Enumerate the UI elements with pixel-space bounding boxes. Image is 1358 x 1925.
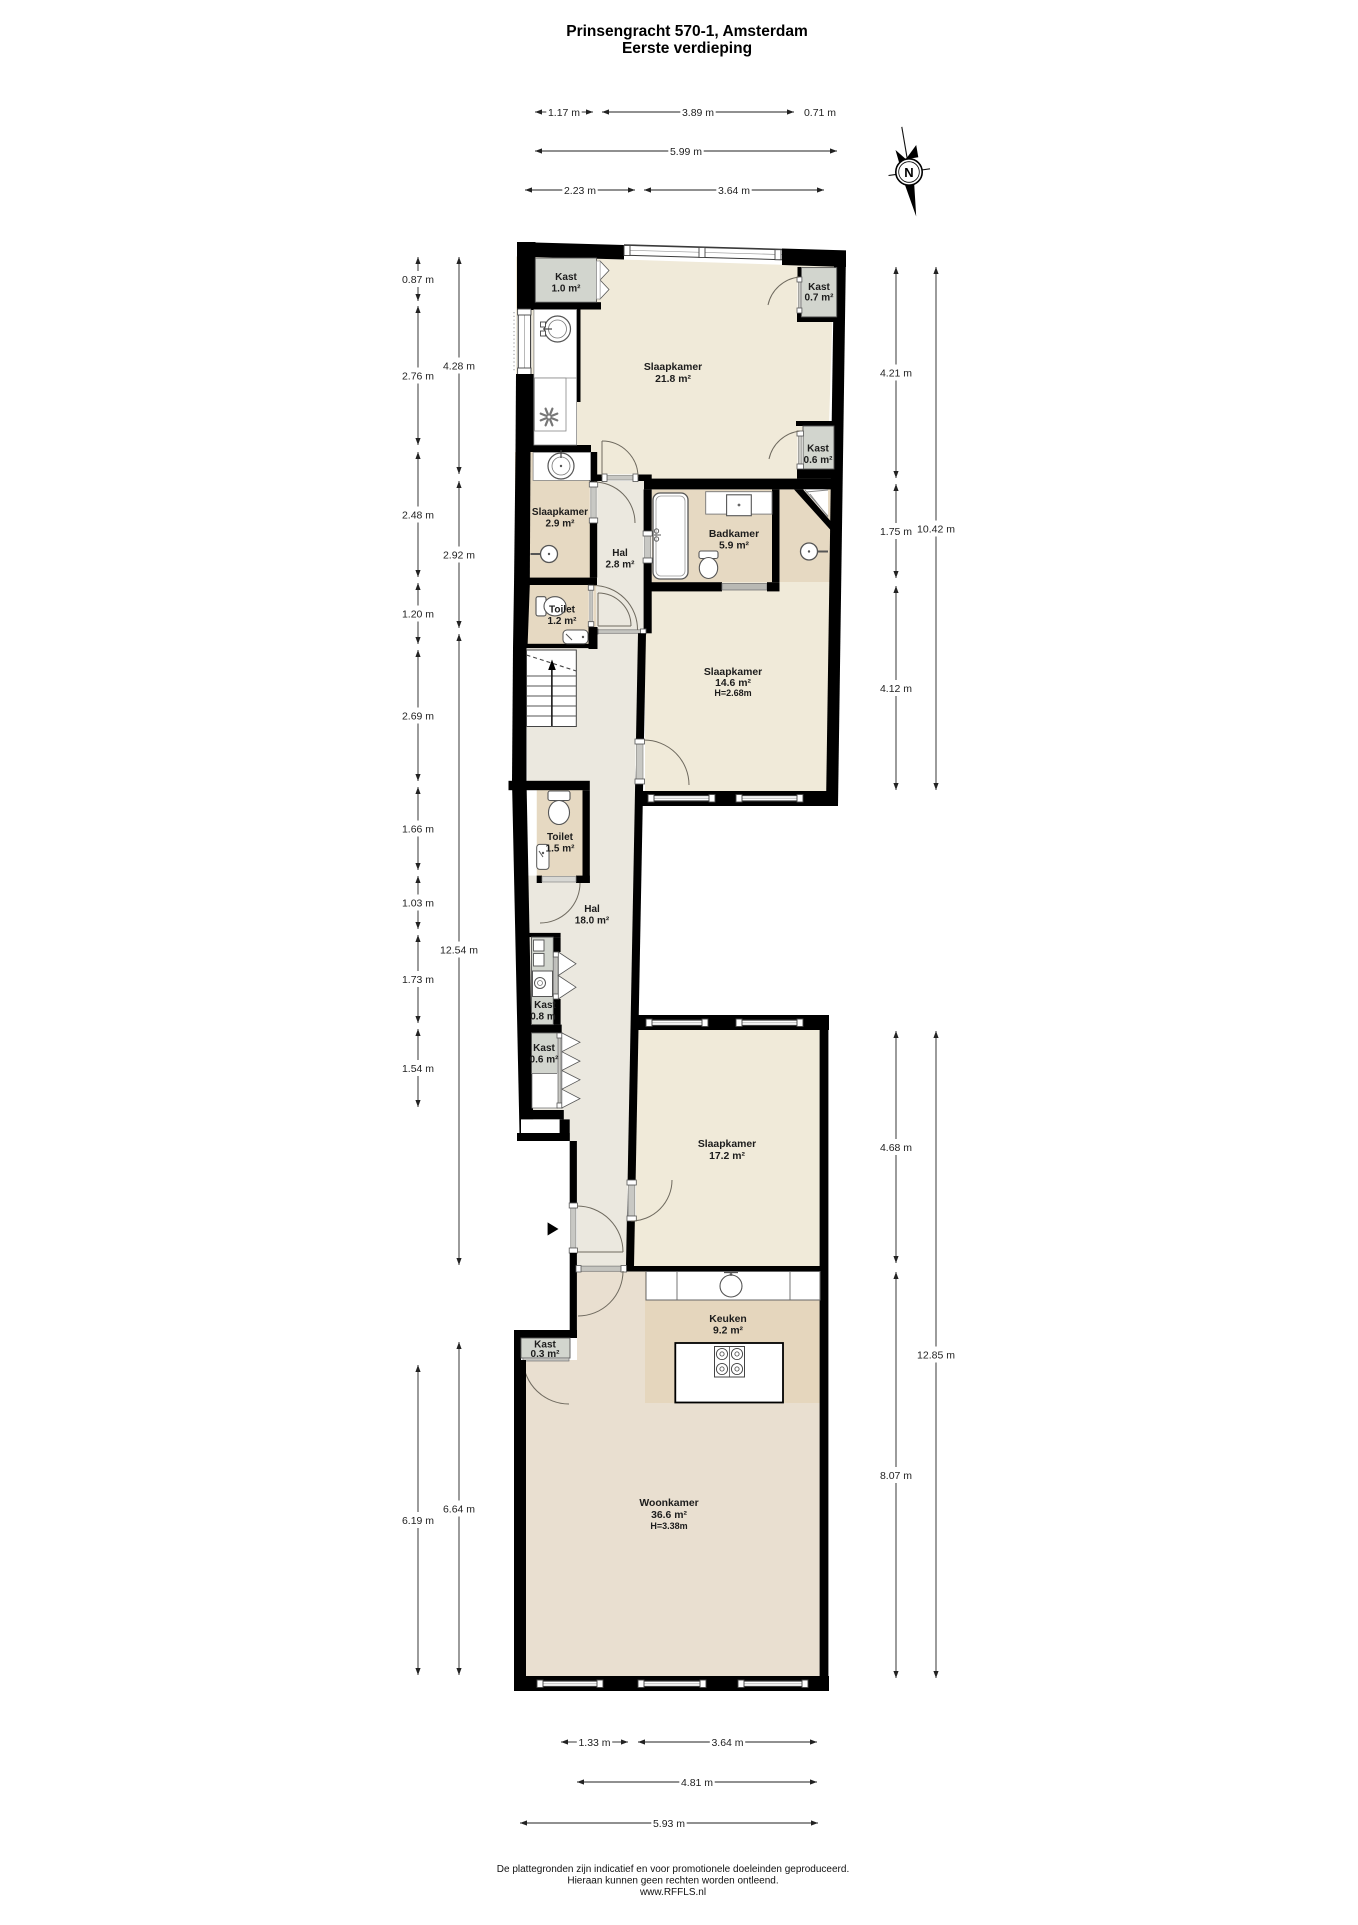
svg-text:Eerste verdieping: Eerste verdieping [622,40,752,57]
svg-text:0.7 m²: 0.7 m² [805,293,835,304]
svg-text:1.0 m²: 1.0 m² [552,284,582,295]
svg-text:Hal: Hal [612,548,628,559]
svg-text:1.20 m: 1.20 m [402,608,434,620]
svg-text:Toilet: Toilet [549,605,576,616]
svg-text:1.17 m: 1.17 m [548,107,580,119]
svg-text:0.3 m²: 0.3 m² [531,1349,561,1360]
svg-text:6.19 m: 6.19 m [402,1515,434,1527]
svg-text:4.68 m: 4.68 m [880,1142,912,1154]
svg-text:1.73 m: 1.73 m [402,974,434,986]
svg-text:2.92 m: 2.92 m [443,549,475,561]
svg-text:0.87 m: 0.87 m [402,274,434,286]
svg-text:8.07 m: 8.07 m [880,1470,912,1482]
svg-text:Kast: Kast [808,282,830,293]
svg-text:4.28 m: 4.28 m [443,360,475,372]
svg-text:Kast: Kast [555,272,577,283]
svg-text:0.71 m: 0.71 m [804,107,836,119]
svg-text:1.54 m: 1.54 m [402,1063,434,1075]
svg-text:18.0 m²: 18.0 m² [575,916,610,927]
svg-text:4.81 m: 4.81 m [681,1777,713,1789]
svg-text:www.RFFLS.nl: www.RFFLS.nl [639,1887,706,1898]
svg-text:1.66 m: 1.66 m [402,823,434,835]
svg-text:Kast: Kast [534,1000,556,1011]
svg-text:Keuken: Keuken [709,1314,747,1325]
svg-text:2.23 m: 2.23 m [564,185,596,197]
svg-text:2.9 m²: 2.9 m² [546,519,576,530]
svg-text:10.42 m: 10.42 m [917,523,955,535]
svg-text:Slaapkamer: Slaapkamer [532,507,588,518]
svg-text:3.64 m: 3.64 m [711,1737,743,1749]
svg-text:5.9 m²: 5.9 m² [719,541,750,552]
svg-text:0.6 m²: 0.6 m² [804,455,834,466]
svg-text:17.2 m²: 17.2 m² [709,1151,745,1162]
svg-text:3.64 m: 3.64 m [718,185,750,197]
svg-text:H=2.68m: H=2.68m [714,688,751,698]
svg-text:2.8 m²: 2.8 m² [606,560,636,571]
svg-text:Woonkamer: Woonkamer [639,1498,698,1509]
svg-text:1.75 m: 1.75 m [880,526,912,538]
svg-text:5.99 m: 5.99 m [670,146,702,158]
svg-text:36.6 m²: 36.6 m² [651,1510,687,1521]
svg-text:Kast: Kast [807,444,829,455]
svg-text:Slaapkamer: Slaapkamer [698,1139,756,1150]
svg-text:6.64 m: 6.64 m [443,1503,475,1515]
svg-text:1.33 m: 1.33 m [578,1737,610,1749]
svg-text:H=3.38m: H=3.38m [650,1521,687,1531]
svg-text:Hieraan kunnen geen rechten wo: Hieraan kunnen geen rechten worden ontle… [567,1876,778,1887]
svg-text:4.12 m: 4.12 m [880,683,912,695]
svg-text:3.89 m: 3.89 m [682,107,714,119]
svg-text:0.6 m²: 0.6 m² [530,1055,560,1066]
svg-text:Badkamer: Badkamer [709,529,759,540]
svg-text:2.69 m: 2.69 m [402,710,434,722]
svg-text:2.76 m: 2.76 m [402,370,434,382]
svg-text:2.48 m: 2.48 m [402,509,434,521]
svg-text:1.2 m²: 1.2 m² [548,616,578,627]
svg-text:Kast: Kast [533,1043,555,1054]
svg-text:Hal: Hal [584,904,600,915]
svg-text:Slaapkamer: Slaapkamer [644,362,702,373]
svg-text:12.54 m: 12.54 m [440,944,478,956]
svg-text:21.8 m²: 21.8 m² [655,374,691,385]
svg-text:De plattegronden zijn indicati: De plattegronden zijn indicatief en voor… [497,1864,849,1875]
svg-text:Slaapkamer: Slaapkamer [704,667,762,678]
svg-text:9.2 m²: 9.2 m² [713,1326,744,1337]
svg-text:Toilet: Toilet [547,832,574,843]
svg-text:4.21 m: 4.21 m [880,367,912,379]
svg-text:12.85 m: 12.85 m [917,1349,955,1361]
svg-text:0.8 m: 0.8 m [530,1012,556,1023]
svg-text:N: N [904,165,913,180]
svg-text:1.03 m: 1.03 m [402,897,434,909]
svg-text:1.5 m²: 1.5 m² [546,844,576,855]
svg-text:Prinsengracht 570-1, Amsterdam: Prinsengracht 570-1, Amsterdam [566,23,808,40]
svg-text:5.93 m: 5.93 m [653,1818,685,1830]
